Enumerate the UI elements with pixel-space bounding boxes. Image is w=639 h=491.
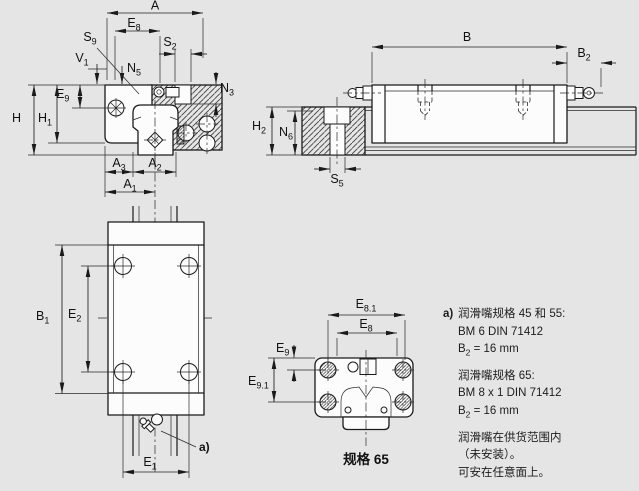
footnote-line: B2 = 16 mm [458,341,615,362]
dim-label-H: H [12,111,21,125]
footnote-line: B2 = 16 mm [458,403,615,424]
dim-label-N5: N5 [127,61,141,78]
dim-label-E2: E2 [68,307,81,324]
carriage-side-body [372,85,567,143]
dim-label-H2: H2 [252,119,266,136]
side-view: B B2 H2 N6 S5 [252,30,636,189]
footnote-line: 润滑嘴规格 65: [458,368,615,386]
footnote-a: a) 润滑嘴规格 45 和 55: BM 6 DIN 71412 B2 = 16… [443,306,615,488]
top-lube-fitting [166,88,179,98]
footnote-group-1: 润滑嘴规格 45 和 55: BM 6 DIN 71412 B2 = 16 mm [458,306,615,362]
dim-label-S9: S9 [83,30,96,47]
footnote-line: 可安在任意面上。 [458,465,615,483]
dim-label-E9-end: E9 [276,341,289,358]
lube-port [348,362,358,372]
dim-label-E8: E8 [127,16,140,33]
dim-label-E9: E9 [56,87,69,104]
footnote-line: 润滑嘴在供货范围内 [458,430,615,448]
footnote-marker: a) [443,306,453,324]
dim-label-A1: A1 [123,177,136,194]
dim-label-E8.1: E8.1 [356,297,377,314]
dim-label-B: B [463,30,471,44]
dim-label-H1: H1 [38,111,52,128]
footnote-group-2: 润滑嘴规格 65: BM 8 x 1 DIN 71412 B2 = 16 mm [458,368,615,424]
dim-label-B2: B2 [577,46,590,63]
size-caption: 规格 65 [343,451,389,467]
note-ref-label: a) [199,440,210,454]
footnote-line: BM 8 x 1 DIN 71412 [458,385,615,403]
lube-port-boss [152,414,163,425]
end-view-size65: E8.1 E8 E9 E9.1 规格 65 [248,297,414,467]
note-leader [161,431,196,447]
dim-label-N6: N6 [279,125,293,142]
dim-label-A: A [151,0,160,13]
seal-screw [381,407,387,413]
footnote-group-3: 润滑嘴在供货范围内 （未安装）。 可安在任意面上。 [458,430,615,483]
dim-label-B1: B1 [36,309,49,326]
dim-label-E9.1: E9.1 [248,374,269,391]
footnote-line: （未安装）。 [458,447,615,465]
seal-screw [345,407,351,413]
dim-label-V1: V1 [75,51,88,68]
footnote-line: BM 6 DIN 71412 [458,324,615,342]
seal-strip [177,126,184,144]
top-lube-channel [154,87,164,97]
dim-label-S5: S5 [330,172,343,189]
dim-label-S2: S2 [163,35,176,52]
footnote-line: 润滑嘴规格 45 和 55: [458,306,615,324]
dim-label-E8-end: E8 [359,317,372,334]
dim-label-A3: A3 [112,156,125,173]
front-section-view: A E8 S2 S9 V1 N5 N3 E9 H H1 A3 A2 A1 [12,0,234,197]
through-hole [330,124,345,155]
dim-label-A2: A2 [148,156,161,173]
plan-view: a) B1 E2 E1 [36,200,214,478]
carriage-plan-body [108,222,204,415]
